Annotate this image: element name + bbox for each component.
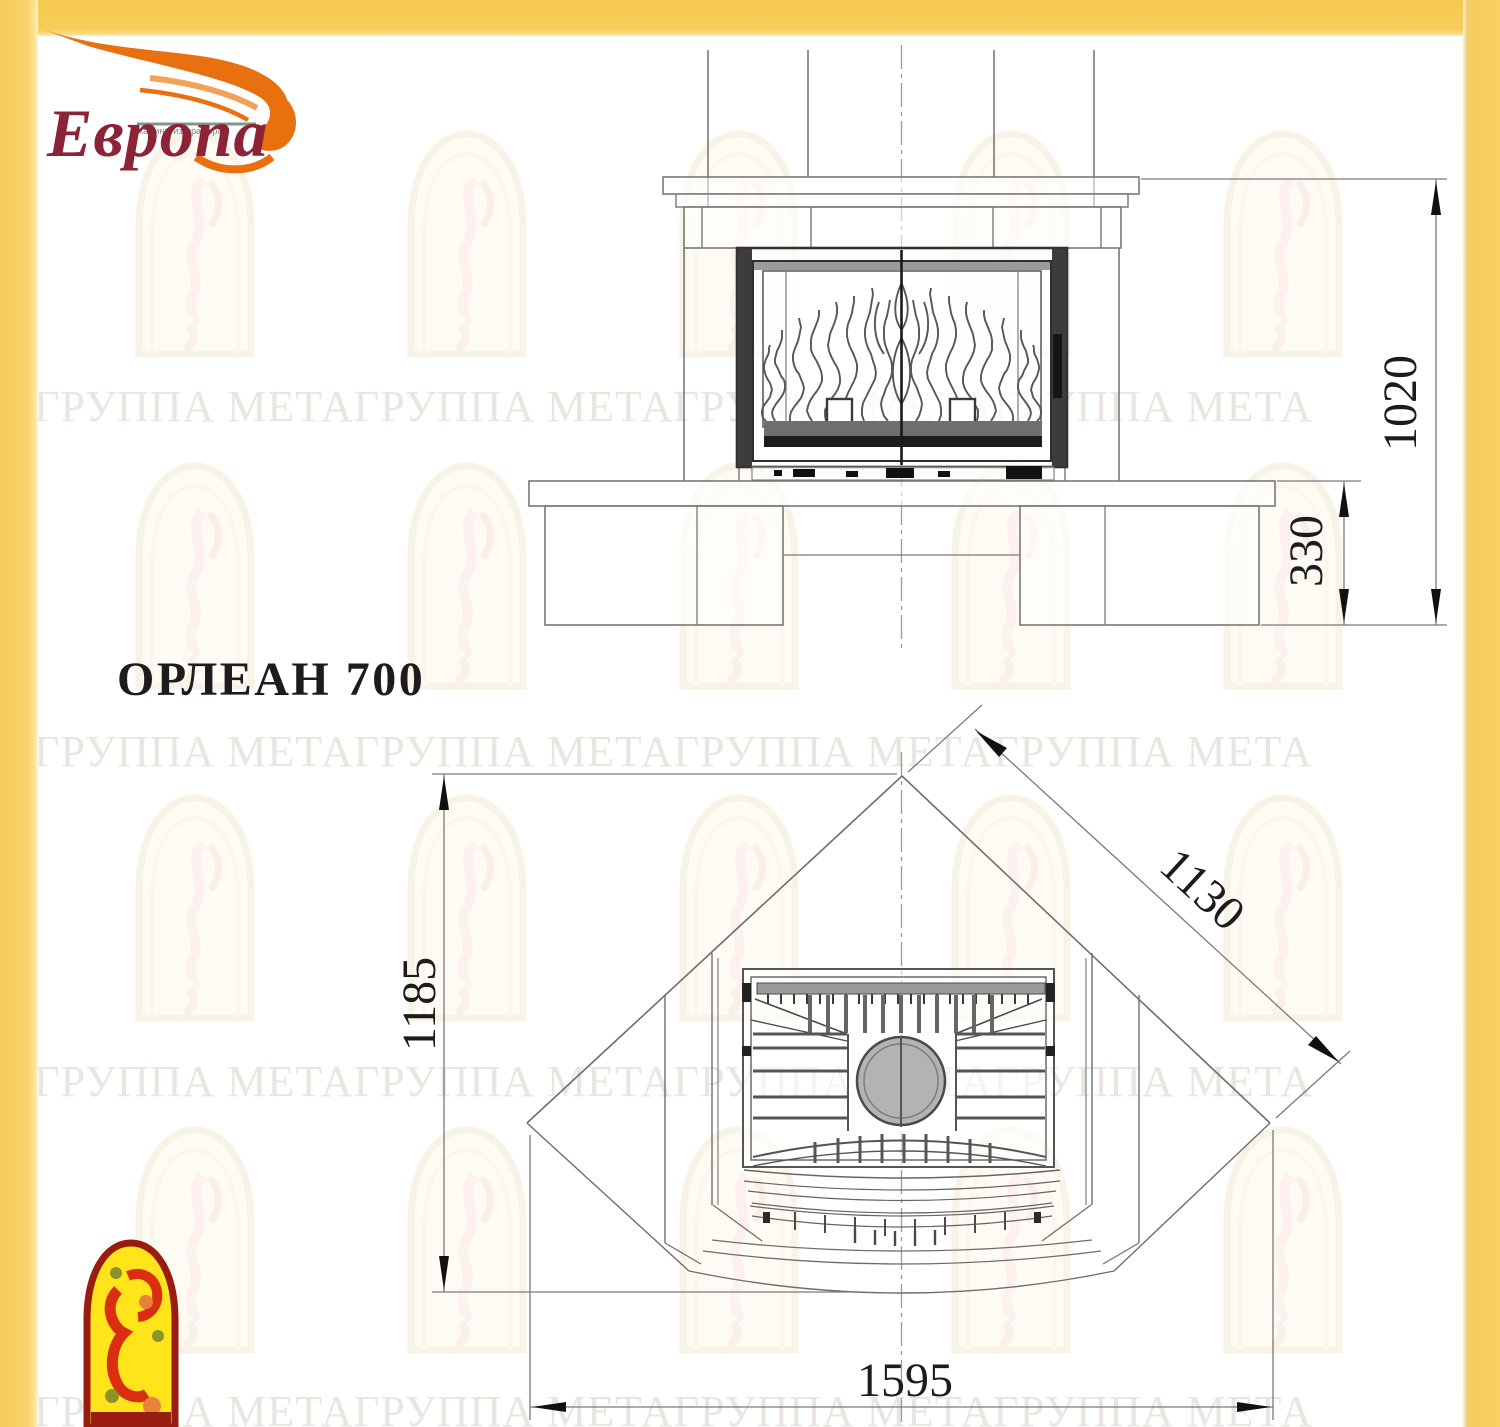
svg-text:ГРУППА МЕТАГРУППА МЕТАГРУППА М: ГРУППА МЕТАГРУППА МЕТАГРУППА МЕТАГРУППА … [34, 727, 1313, 776]
svg-text:ОРЛЕАН 700: ОРЛЕАН 700 [117, 653, 425, 706]
svg-text:330: 330 [1280, 515, 1333, 587]
svg-text:Европа: Европа [46, 95, 269, 171]
svg-text:1020: 1020 [1374, 355, 1427, 451]
svg-text:1595: 1595 [857, 1354, 953, 1407]
svg-text:ГРУППА МЕТАГРУППА МЕТАГРУППА М: ГРУППА МЕТАГРУППА МЕТАГРУППА МЕТАГРУППА … [34, 382, 1313, 431]
svg-text:1185: 1185 [393, 957, 446, 1051]
svg-text:ГРУППА МЕТАГРУППА МЕТАГРУППА М: ГРУППА МЕТАГРУППА МЕТАГРУППА МЕТАГРУППА … [34, 1057, 1313, 1106]
